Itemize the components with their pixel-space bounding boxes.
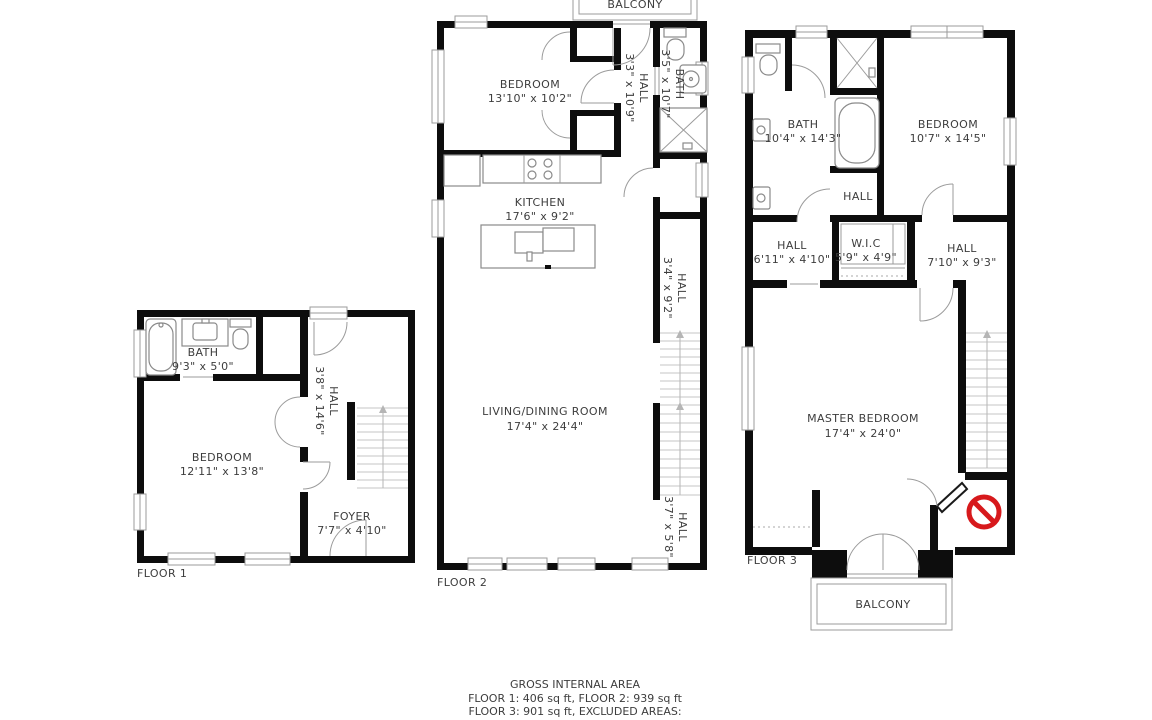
floor3-title: FLOOR 3 (747, 554, 797, 567)
floor2-title: FLOOR 2 (437, 576, 487, 589)
floor3-wic-label: W.I.C (851, 237, 881, 250)
floor3-bedroom-dims: 10'7" x 14'5" (910, 132, 987, 145)
floor3-hall-b-label: HALL (947, 242, 977, 255)
floor1-bath-label: BATH (188, 346, 219, 359)
area-summary: GROSS INTERNAL AREA FLOOR 1: 406 sq ft, … (402, 678, 749, 720)
floor3-bath-label: BATH (788, 118, 819, 131)
floor2-balcony-label: BALCONY (607, 0, 662, 11)
floor3-master-label: MASTER BEDROOM (807, 412, 919, 425)
floor-3-plan: BALCONY BATH 10'4" x 14'3" BEDROOM 10'7"… (742, 26, 1016, 630)
floor3-hall-b-dims: 7'10" x 9'3" (927, 256, 996, 269)
floor3-shower-icon (837, 38, 877, 88)
floor2-hall-a-dims: 3'3" x 10'9" (623, 53, 636, 122)
floor2-hall-b-label: HALL (675, 273, 688, 303)
floor3-balcony-label: BALCONY (855, 598, 910, 611)
floor3-understair-door (907, 479, 967, 512)
floor3-walls (745, 30, 1015, 578)
floor2-fridge-icon (444, 155, 480, 186)
floor2-balcony: BALCONY (573, 0, 697, 24)
floor2-hall-c-dims: 3'7" x 5'8" (662, 496, 675, 558)
floor3-wic-dims: 5'9" x 4'9" (835, 251, 897, 264)
floor2-bedroom-dims: 13'10" x 10'2" (488, 92, 572, 105)
area-line-1: FLOOR 1: 406 sq ft, FLOOR 2: 939 sq ft (468, 692, 683, 705)
floor3-toilet-icon (756, 44, 780, 75)
floor2-counter-icon (483, 155, 601, 183)
area-line-2: FLOOR 3: 901 sq ft, EXCLUDED AREAS: (468, 705, 681, 718)
floor-1-plan: BATH 9'3" x 5'0" BEDROOM 12'11" x 13'8" … (134, 307, 415, 580)
floor2-stairs-icon (660, 330, 700, 495)
floor2-living-label: LIVING/DINING ROOM (482, 405, 608, 418)
floor3-bath-dims: 10'4" x 14'3" (765, 132, 842, 145)
floor2-island-icon (481, 225, 595, 269)
floor3-bathtub-icon (835, 98, 879, 168)
floor2-bath-label: BATH (673, 69, 686, 100)
floor1-bedroom-label: BEDROOM (192, 451, 252, 464)
floor3-balcony: BALCONY (811, 578, 952, 630)
floor1-hall-dims: 3'8" x 14'6" (313, 366, 326, 435)
floor1-toilet-icon (230, 319, 251, 349)
floor1-bedroom-dims: 12'11" x 13'8" (180, 465, 264, 478)
floor3-hall-a-dims: 6'11" x 4'10" (754, 253, 831, 266)
floor1-sink-icon (182, 319, 228, 346)
floor3-stairs-icon (966, 330, 1007, 468)
floor2-living-dims: 17'4" x 24'4" (507, 420, 584, 433)
floor1-hall-label: HALL (327, 386, 340, 416)
floor3-hall-small-label: HALL (843, 190, 873, 203)
floor2-hall-a-label: HALL (637, 73, 650, 103)
floor1-stairs-icon (357, 405, 408, 488)
floor3-closet-shelves (841, 224, 905, 276)
floor1-foyer-label: FOYER (333, 510, 371, 523)
floor2-bedroom-label: BEDROOM (500, 78, 560, 91)
floor-2-plan: BALCONY (432, 0, 708, 589)
gross-area-title: GROSS INTERNAL AREA (510, 678, 641, 691)
floor2-bath-dims: 3'5" x 10'7" (659, 49, 672, 118)
floor-plan-page: BATH 9'3" x 5'0" BEDROOM 12'11" x 13'8" … (0, 0, 1152, 720)
floor1-foyer-dims: 7'7" x 4'10" (317, 524, 386, 537)
floor3-hall-a-label: HALL (777, 239, 807, 252)
floor2-hall-c-label: HALL (676, 512, 689, 542)
floor-plan-canvas: BATH 9'3" x 5'0" BEDROOM 12'11" x 13'8" … (0, 0, 1152, 720)
floor2-kitchen-label: KITCHEN (515, 196, 565, 209)
floor1-bath-dims: 9'3" x 5'0" (172, 360, 234, 373)
floor2-kitchen-dims: 17'6" x 9'2" (505, 210, 574, 223)
floor2-hall-b-dims: 3'4" x 9'2" (661, 257, 674, 319)
floor1-title: FLOOR 1 (137, 567, 187, 580)
no-entry-icon (969, 497, 999, 527)
floor3-bedroom-label: BEDROOM (918, 118, 978, 131)
floor3-master-dims: 17'4" x 24'0" (825, 427, 902, 440)
